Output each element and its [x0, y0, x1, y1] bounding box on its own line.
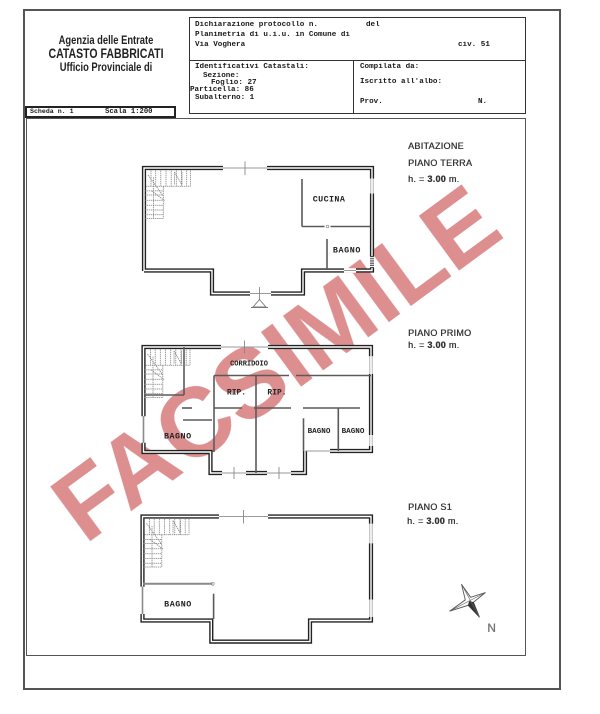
svg-text:RIP.: RIP.: [267, 389, 286, 398]
svg-text:CORRIDOIO: CORRIDOIO: [230, 361, 268, 369]
svg-text:BAGNO: BAGNO: [164, 432, 192, 442]
svg-text:BAGNO: BAGNO: [308, 428, 331, 436]
svg-text:BAGNO: BAGNO: [333, 246, 361, 256]
svg-text:RIP.: RIP.: [227, 389, 246, 398]
svg-text:BAGNO: BAGNO: [164, 600, 192, 610]
svg-text:CUCINA: CUCINA: [313, 195, 346, 205]
svg-text:BAGNO: BAGNO: [342, 428, 365, 436]
